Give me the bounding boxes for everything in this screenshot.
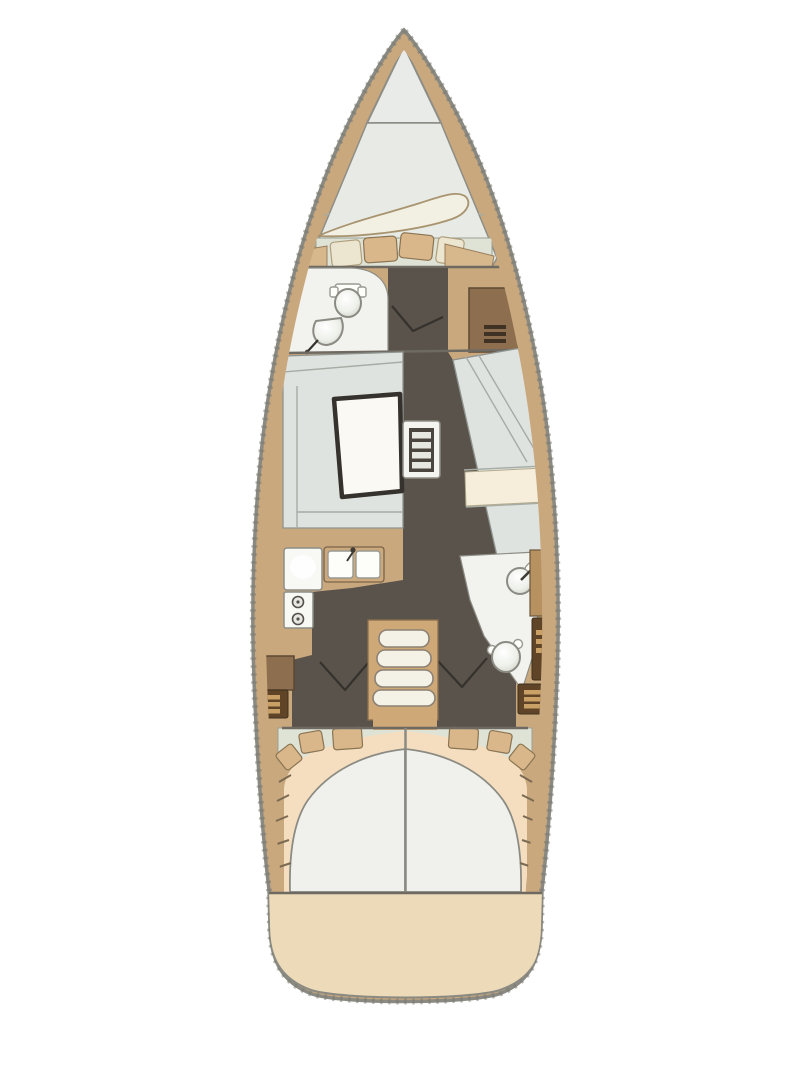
stove-icon — [284, 592, 313, 628]
stern-section — [266, 893, 545, 998]
step-tread — [375, 670, 433, 687]
port-aft-cabin — [275, 727, 406, 892]
side-cushion-port — [330, 239, 362, 267]
pillow — [486, 730, 512, 754]
settee-cream-cushion — [465, 468, 544, 506]
stern-platform — [268, 893, 543, 998]
shelf-icon — [484, 325, 506, 343]
pillow — [448, 727, 478, 750]
step-tread — [377, 650, 431, 667]
yacht-floor-plan — [0, 0, 808, 1080]
magazine-rack — [403, 421, 440, 478]
fridge-icon — [284, 548, 322, 590]
aft-cabins — [275, 718, 536, 892]
pillow — [332, 727, 362, 750]
pillow — [298, 730, 324, 754]
dining-table — [334, 394, 402, 497]
step-tread — [373, 690, 435, 706]
starboard-aft-cabin — [405, 727, 536, 892]
double-sink-icon — [324, 547, 384, 582]
companionway-steps — [368, 620, 438, 720]
pillow — [399, 232, 434, 260]
yacht-floor-plan-canvas — [0, 0, 808, 1080]
pillow — [363, 236, 398, 263]
step-tread — [379, 630, 429, 647]
